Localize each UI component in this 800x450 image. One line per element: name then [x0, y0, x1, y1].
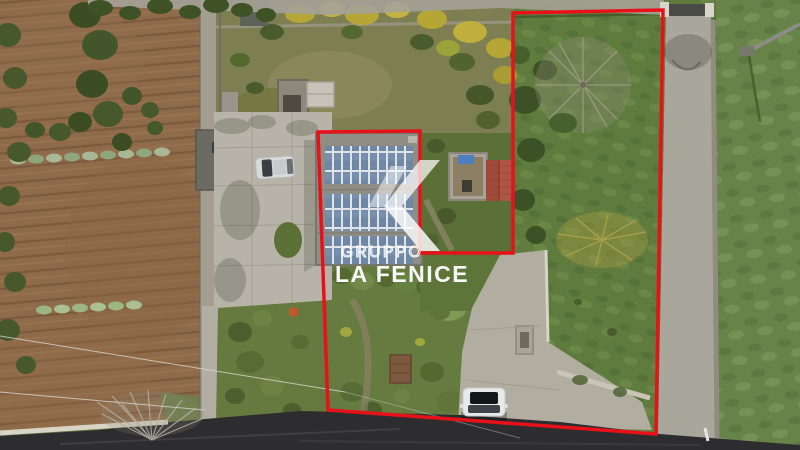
- retaining-wall: [546, 250, 548, 342]
- brand-name-la-fenice: LA FENICE: [335, 261, 469, 287]
- listing-photo: GRUPPO LA FENICE: [0, 0, 800, 450]
- white-shed: [307, 82, 334, 107]
- field-spot: [607, 328, 617, 336]
- yellow-bare-tree: [556, 212, 648, 268]
- excluded-yard: [422, 133, 513, 253]
- orange-crate: [289, 308, 298, 316]
- brand-name-gruppo: GRUPPO: [341, 244, 423, 261]
- white-car: [460, 388, 508, 422]
- silver-car: [255, 156, 294, 180]
- car-sunroof: [470, 392, 498, 404]
- car-windshield: [468, 405, 500, 413]
- building-shadow: [304, 140, 316, 272]
- south-lane: [202, 306, 218, 426]
- well-box: [516, 326, 533, 354]
- red-roof-shed: [486, 160, 512, 201]
- gate: [660, 2, 714, 17]
- gate-shadow: [664, 34, 712, 70]
- courtyard-tree: [274, 222, 302, 258]
- roof-vent: [408, 136, 417, 143]
- water-tank: [458, 155, 474, 164]
- plowed-field: [0, 0, 215, 434]
- bare-tree: [535, 37, 631, 133]
- shed-enclosure: [449, 153, 487, 200]
- field-spot: [574, 299, 582, 305]
- aerial-photo: GRUPPO LA FENICE: [0, 0, 800, 450]
- rusty-structure: [390, 355, 411, 383]
